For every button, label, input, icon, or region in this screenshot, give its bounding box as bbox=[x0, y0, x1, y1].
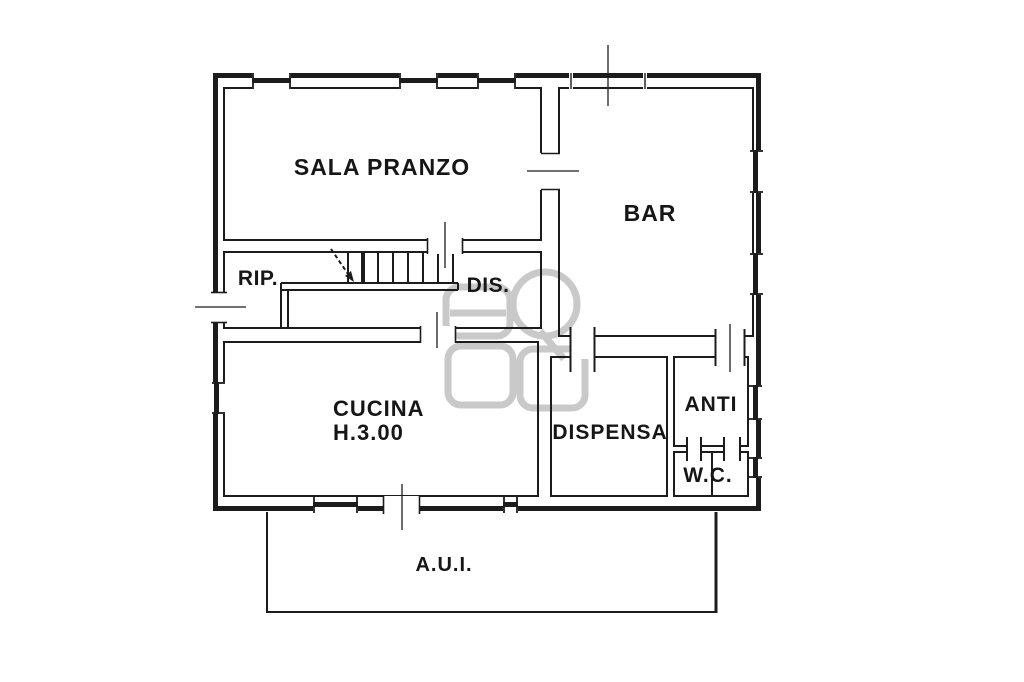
label-rip: RIP. bbox=[238, 267, 278, 290]
window-top-3 bbox=[477, 72, 516, 89]
window-right-2 bbox=[750, 253, 763, 295]
floor-plan-drawing: SALA PRANZO BAR RIP. DIS. CUCINA H.3.00 … bbox=[0, 0, 1024, 682]
room-labels: SALA PRANZO BAR RIP. DIS. CUCINA H.3.00 … bbox=[238, 154, 738, 576]
label-dispensa: DISPENSA bbox=[552, 421, 667, 444]
label-aui: A.U.I. bbox=[415, 554, 472, 576]
door-corridor-cucina bbox=[420, 312, 456, 348]
watermark-square-bl bbox=[448, 346, 513, 405]
watermark-circle bbox=[513, 272, 577, 336]
label-anti: ANTI bbox=[685, 393, 738, 416]
label-wc: W.C. bbox=[683, 464, 733, 487]
window-bottom-1 bbox=[313, 497, 358, 513]
door-rip-left bbox=[195, 292, 246, 323]
label-bar: BAR bbox=[624, 200, 677, 226]
label-cucina: CUCINA bbox=[333, 396, 425, 421]
window-top-2 bbox=[399, 72, 438, 89]
label-dis: DIS. bbox=[467, 274, 510, 297]
window-bottom-2 bbox=[503, 497, 518, 513]
door-cucina-aui bbox=[383, 484, 420, 530]
window-wc bbox=[749, 457, 762, 478]
door-sala-corridor bbox=[427, 222, 463, 268]
stairs bbox=[348, 252, 453, 283]
window-top-1 bbox=[252, 72, 291, 89]
window-anti bbox=[749, 385, 762, 420]
door-anti-wc bbox=[686, 437, 741, 461]
window-cucina bbox=[212, 382, 225, 414]
floor-plan-canvas: SALA PRANZO BAR RIP. DIS. CUCINA H.3.00 … bbox=[0, 0, 1024, 682]
label-sala-pranzo: SALA PRANZO bbox=[294, 154, 470, 180]
stairs-direction-arrow bbox=[331, 249, 354, 282]
aui-annex bbox=[267, 512, 716, 613]
door-bar-anti bbox=[715, 324, 745, 372]
door-sala-bar bbox=[527, 153, 579, 190]
rip-divider-walls bbox=[281, 283, 458, 329]
label-cucina-height: H.3.00 bbox=[333, 420, 404, 445]
window-right-1 bbox=[750, 150, 763, 193]
